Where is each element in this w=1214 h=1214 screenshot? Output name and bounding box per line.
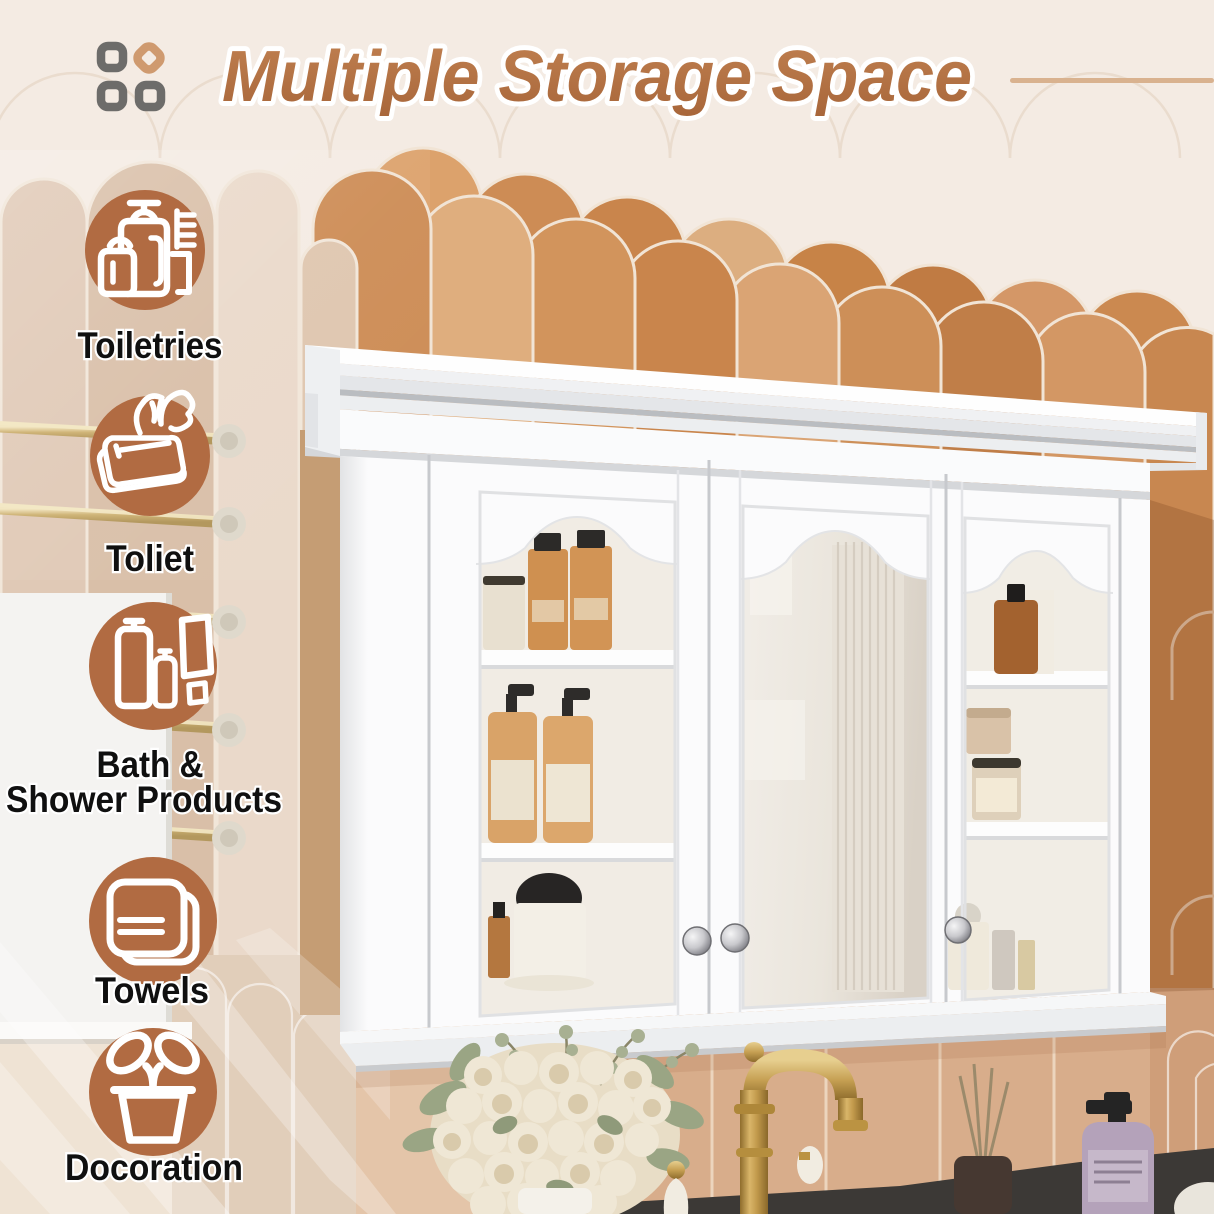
svg-text:Toiletries: Toiletries: [78, 325, 223, 366]
svg-text:Towels: Towels: [95, 970, 209, 1011]
svg-text:Multiple Storage Space: Multiple Storage Space: [222, 37, 972, 117]
svg-text:Docoration: Docoration: [65, 1147, 243, 1188]
svg-text:Shower Products: Shower Products: [6, 779, 282, 820]
svg-text:Toliet: Toliet: [106, 538, 194, 579]
